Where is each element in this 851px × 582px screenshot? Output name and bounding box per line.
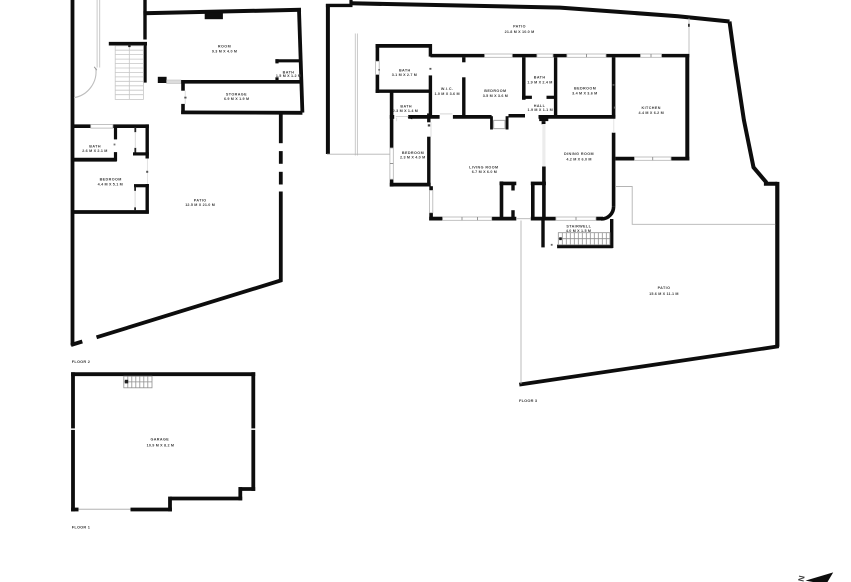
svg-text:BEDROOM: BEDROOM xyxy=(484,89,506,93)
svg-text:W.I.C.: W.I.C. xyxy=(441,87,454,91)
svg-text:GARAGE: GARAGE xyxy=(150,438,169,442)
svg-text:PATIO: PATIO xyxy=(658,286,671,290)
svg-text:4.0 M X 1.5 M: 4.0 M X 1.5 M xyxy=(566,229,591,233)
svg-text:2.3 M X 4.0 M: 2.3 M X 4.0 M xyxy=(400,156,425,160)
svg-text:BEDROOM: BEDROOM xyxy=(574,87,596,91)
svg-text:6.7 M X 6.0 M: 6.7 M X 6.0 M xyxy=(472,170,497,174)
svg-text:12.5 M X 21.0 M: 12.5 M X 21.0 M xyxy=(185,203,215,207)
svg-text:3.5 M X 3.6 M: 3.5 M X 3.6 M xyxy=(483,94,508,98)
svg-text:STAIRWELL: STAIRWELL xyxy=(566,224,591,228)
svg-text:BATH: BATH xyxy=(534,76,546,80)
svg-text:KITCHEN: KITCHEN xyxy=(642,106,661,110)
svg-text:STORAGE: STORAGE xyxy=(226,92,247,96)
svg-text:6.9 M X 1.9 M: 6.9 M X 1.9 M xyxy=(224,97,249,101)
svg-text:ROOM: ROOM xyxy=(218,44,231,48)
svg-text:15.6 M X 11.1 M: 15.6 M X 11.1 M xyxy=(649,292,679,296)
svg-text:LIVING ROOM: LIVING ROOM xyxy=(469,165,498,169)
svg-text:2.3 M X 1.4 M: 2.3 M X 1.4 M xyxy=(393,109,418,113)
svg-text:BEDROOM: BEDROOM xyxy=(100,178,122,182)
svg-text:FLOOR 3: FLOOR 3 xyxy=(519,398,538,403)
svg-text:4.4 M X 6.2 M: 4.4 M X 6.2 M xyxy=(639,111,664,115)
svg-text:FLOOR 2: FLOOR 2 xyxy=(72,359,91,364)
svg-text:BATH: BATH xyxy=(89,144,101,148)
svg-text:PATIO: PATIO xyxy=(194,198,207,202)
svg-text:BEDROOM: BEDROOM xyxy=(402,151,424,155)
svg-text:FLOOR 1: FLOOR 1 xyxy=(72,524,91,529)
svg-text:9.3 M X 4.0 M: 9.3 M X 4.0 M xyxy=(212,50,237,54)
svg-text:1.9 M X 1.1 M: 1.9 M X 1.1 M xyxy=(528,108,553,112)
svg-text:3.4 M X 3.6 M: 3.4 M X 3.6 M xyxy=(572,91,597,95)
svg-text:PATIO: PATIO xyxy=(513,25,526,29)
svg-text:1.5 M X 1.2 M: 1.5 M X 1.2 M xyxy=(276,74,301,78)
svg-text:3.1 M X 2.7 M: 3.1 M X 2.7 M xyxy=(392,73,417,77)
svg-text:4.2 M X 6.0 M: 4.2 M X 6.0 M xyxy=(566,158,591,162)
svg-text:1.0 M X 3.6 M: 1.0 M X 3.6 M xyxy=(434,92,459,96)
svg-text:BATH: BATH xyxy=(399,69,411,73)
svg-text:1.9 M X 2.4 M: 1.9 M X 2.4 M xyxy=(527,80,552,84)
svg-text:4.4 M X 5.1 M: 4.4 M X 5.1 M xyxy=(98,182,123,186)
svg-text:10.9 M X 8.2 M: 10.9 M X 8.2 M xyxy=(147,444,175,448)
svg-text:21.8 M X 10.0 M: 21.8 M X 10.0 M xyxy=(505,30,535,34)
svg-text:DINING ROOM: DINING ROOM xyxy=(564,152,594,156)
svg-text:2.6 M X 2.1 M: 2.6 M X 2.1 M xyxy=(82,149,107,153)
